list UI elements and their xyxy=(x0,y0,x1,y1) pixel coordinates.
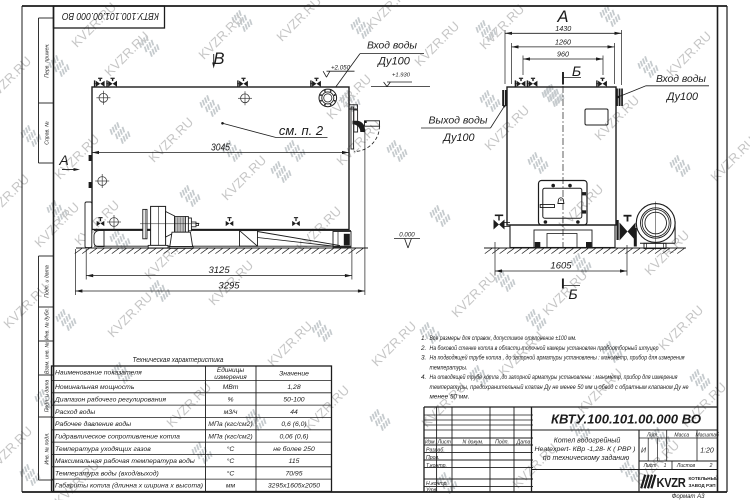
svg-text:температуры.: температуры. xyxy=(430,364,468,371)
svg-text:На боковой стенке котла в обла: На боковой стенке котла в области топочн… xyxy=(430,345,659,352)
svg-text:°С: °С xyxy=(227,457,235,465)
svg-text:Б: Б xyxy=(572,64,581,80)
svg-text:1:20: 1:20 xyxy=(700,448,714,455)
svg-text:3295: 3295 xyxy=(218,281,240,292)
svg-text:Разраб.: Разраб. xyxy=(426,447,445,453)
svg-text:°С: °С xyxy=(227,469,235,477)
svg-text:Гидравлическое сопротивление к: Гидравлическое сопротивление котла xyxy=(55,432,180,440)
svg-text:см. п. 2: см. п. 2 xyxy=(279,123,324,138)
svg-text:КВТУ.100.101.00.000 ВО: КВТУ.100.101.00.000 ВО xyxy=(551,412,702,427)
svg-text:КВТУ.100.101.00.000 ВО: КВТУ.100.101.00.000 ВО xyxy=(62,10,159,22)
svg-text:Номинальная мощность: Номинальная мощность xyxy=(55,384,135,391)
svg-text:Утв.: Утв. xyxy=(426,487,438,493)
svg-text:Heatexpert- КВр -1,28- К ( РВР: Heatexpert- КВр -1,28- К ( РВР ) xyxy=(535,446,636,453)
svg-text:1,28: 1,28 xyxy=(287,384,300,391)
svg-text:Габариты котла (длинна х ширин: Габариты котла (длинна х ширина х высота… xyxy=(55,482,203,490)
svg-text:МПа (кгс/см2): МПа (кгс/см2) xyxy=(208,433,252,440)
svg-text:Вход воды: Вход воды xyxy=(367,41,417,52)
svg-text:Значение: Значение xyxy=(279,371,309,378)
svg-text:МВт: МВт xyxy=(223,384,239,391)
svg-text:1605: 1605 xyxy=(550,261,572,272)
svg-text:Выход воды: Выход воды xyxy=(428,115,487,127)
svg-text:KVZR: KVZR xyxy=(657,476,686,490)
svg-text:Масштаб: Масштаб xyxy=(696,432,720,438)
svg-text:Пров.: Пров. xyxy=(426,455,440,461)
svg-text:4.: 4. xyxy=(421,374,426,381)
svg-text:Все размеры для справок, допус: Все размеры для справок, допустимое откл… xyxy=(430,335,577,342)
svg-text:На подводящей трубе котла ,: На подводящей трубе котла , до запорной … xyxy=(430,355,686,362)
svg-text:не более 250: не более 250 xyxy=(273,445,315,453)
svg-text:температуры, предохранительный: температуры, предохранительный клапан Ду… xyxy=(430,384,689,391)
svg-text:1430: 1430 xyxy=(555,24,571,33)
svg-text:Перв. примен.: Перв. примен. xyxy=(45,43,51,77)
svg-text:м3/ч: м3/ч xyxy=(224,409,238,416)
svg-text:Масса: Масса xyxy=(674,432,689,438)
svg-text:Б: Б xyxy=(568,287,577,303)
svg-text:Лит.: Лит. xyxy=(646,432,659,438)
svg-text:115: 115 xyxy=(289,458,300,465)
svg-text:Т.контр.: Т.контр. xyxy=(426,463,447,469)
svg-text:Температура воды (вход/выход): Температура воды (вход/выход) xyxy=(55,469,159,477)
svg-text:+1.930: +1.930 xyxy=(392,72,411,78)
svg-text:3.: 3. xyxy=(421,355,426,362)
svg-text:Дата: Дата xyxy=(516,439,531,445)
svg-text:Подп. и дата: Подп. и дата xyxy=(45,380,51,413)
svg-text:ЗАВОД РЭП: ЗАВОД РЭП xyxy=(689,483,716,488)
svg-text:2: 2 xyxy=(709,463,713,469)
svg-text:Подп.: Подп. xyxy=(495,439,509,445)
svg-text:Взам. инв. №: Взам. инв. № xyxy=(45,342,51,374)
svg-text:На отводящей трубе котла ,до з: На отводящей трубе котла ,до запорной ар… xyxy=(430,374,679,381)
svg-text:Лист: Лист xyxy=(643,463,657,469)
svg-text:Диапазон рабочего регулировани: Диапазон рабочего регулирования xyxy=(54,395,166,403)
svg-text:2.: 2. xyxy=(420,345,426,352)
svg-text:Котел водогрейный: Котел водогрейный xyxy=(554,436,621,444)
svg-text:Подп. и дата: Подп. и дата xyxy=(45,265,51,298)
svg-text:Расход воды: Расход воды xyxy=(55,408,95,416)
svg-text:0,6 (6,0): 0,6 (6,0) xyxy=(281,421,306,428)
svg-text:0.000: 0.000 xyxy=(399,232,415,239)
svg-text:1: 1 xyxy=(664,463,667,469)
svg-text:Справ. №: Справ. № xyxy=(45,121,51,145)
svg-text:Вход воды: Вход воды xyxy=(656,74,706,85)
svg-text:960: 960 xyxy=(557,50,569,59)
svg-text:МПа (кгс/см2): МПа (кгс/см2) xyxy=(208,421,252,428)
svg-text:%: % xyxy=(227,396,233,403)
svg-text:3045: 3045 xyxy=(211,143,230,154)
svg-text:3125: 3125 xyxy=(208,265,230,276)
svg-text:Температура уходящих газов: Температура уходящих газов xyxy=(55,445,151,453)
svg-text:0,06 (0,6): 0,06 (0,6) xyxy=(279,433,308,440)
svg-text:70/95: 70/95 xyxy=(285,470,302,477)
svg-text:Техническая характеристика: Техническая характеристика xyxy=(133,355,224,364)
svg-text:Лист: Лист xyxy=(437,439,452,445)
svg-text:менее 50 мм.: менее 50 мм. xyxy=(430,394,470,401)
svg-text:Н.контр.: Н.контр. xyxy=(426,481,448,487)
svg-text:В: В xyxy=(213,50,224,68)
svg-text:N докум.: N докум. xyxy=(463,439,484,445)
svg-text:1.: 1. xyxy=(421,335,426,342)
svg-text:Листов: Листов xyxy=(676,463,696,469)
svg-text:Формат А3: Формат А3 xyxy=(672,494,705,500)
svg-text:измерения: измерения xyxy=(214,374,247,381)
svg-text:Инв. № подл.: Инв. № подл. xyxy=(45,432,51,464)
svg-text:44: 44 xyxy=(290,409,298,416)
svg-text:Рабочее давление воды: Рабочее давление воды xyxy=(55,420,131,428)
svg-text:Ду100: Ду100 xyxy=(442,132,474,144)
svg-text:А: А xyxy=(58,152,68,168)
svg-text:Наименование показателя: Наименование показателя xyxy=(55,370,142,377)
svg-text:50-100: 50-100 xyxy=(283,396,304,403)
svg-text:Максимальная рабочая температу: Максимальная рабочая температура воды xyxy=(55,457,195,465)
svg-text:1260: 1260 xyxy=(555,37,571,46)
svg-text:по техническому заданию: по техническому заданию xyxy=(543,454,630,462)
svg-text:Инв. № дубл.: Инв. № дубл. xyxy=(45,308,51,340)
svg-text:°С: °С xyxy=(227,445,235,453)
svg-text:Ду100: Ду100 xyxy=(376,56,411,68)
svg-text:мм: мм xyxy=(226,483,236,490)
svg-text:Изм.: Изм. xyxy=(425,439,436,445)
svg-text:КОТЕЛЬНЫЙ: КОТЕЛЬНЫЙ xyxy=(689,474,719,481)
svg-text:3295х1605х2050: 3295х1605х2050 xyxy=(268,483,320,490)
svg-text:Ду100: Ду100 xyxy=(666,91,698,103)
svg-text:Единицы: Единицы xyxy=(217,366,244,374)
